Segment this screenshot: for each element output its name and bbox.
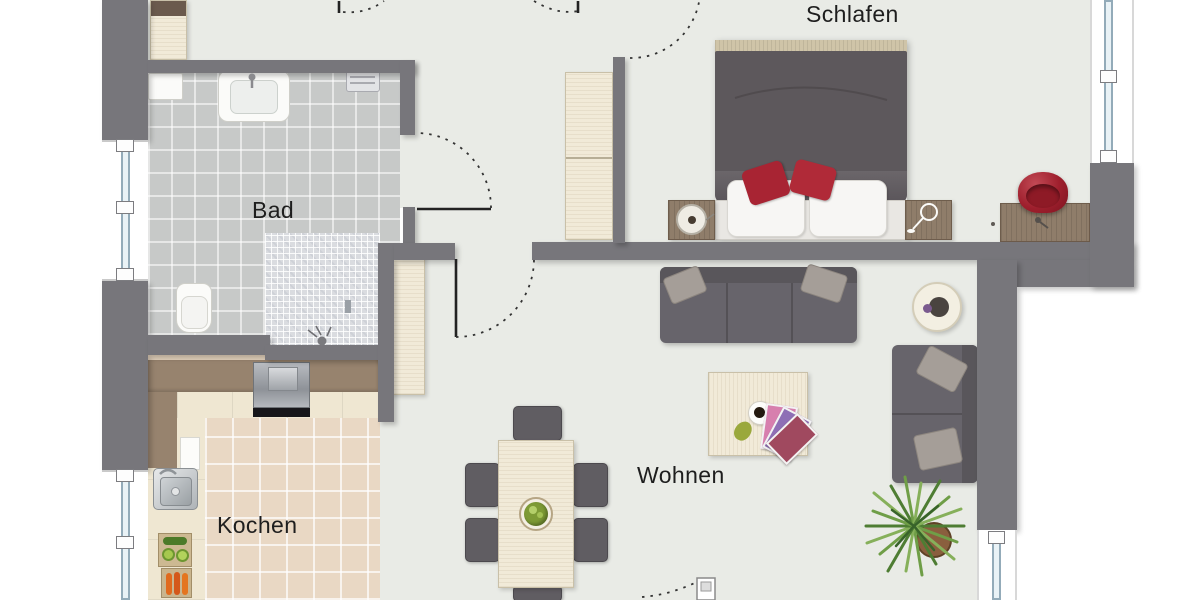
kitchen-sink-drain [171,487,180,496]
cucumber [163,537,187,545]
wall-living-east [977,260,1017,530]
salad-leaf [537,512,543,518]
wall-kitchen-east [378,243,394,422]
kitchen-floor [205,418,380,600]
dining-chair-right-2 [573,518,608,562]
toilet-seat [181,296,208,329]
window-handle [116,536,134,549]
dining-chair-left-2 [465,518,500,562]
cucumber-slice [162,548,175,561]
floor-door-gap-living [455,243,532,260]
wall-bath-east-lower [403,207,415,243]
bath-sink-basin [230,80,278,114]
sofa-divider [726,283,728,343]
floor-door-gap-bath [400,133,415,208]
double-bed [715,40,907,240]
toilet [176,283,212,333]
salad-leaf [529,506,537,514]
kitchen-sink [153,468,198,510]
floor-plan: Schlafen Bad Kochen Wohnen [0,0,1200,600]
coffee-table [708,372,808,456]
wall-shower-south [265,345,380,360]
room-label-kitchen: Kochen [217,512,297,539]
kitchen-board [180,437,200,470]
wall-bedroom-west [613,57,625,243]
wall-bath-north [148,60,415,73]
radiator-bar [350,82,375,84]
wardrobe-hall [565,72,613,240]
lamp-center [688,216,696,224]
wall-bath-south [148,335,270,355]
dining-chair-top [513,406,562,441]
window-handle [1100,70,1117,83]
carrot [174,572,180,595]
red-bowl [1018,172,1068,213]
window-handle [988,531,1005,544]
window-handle [116,201,134,214]
sofa-divider [791,283,793,343]
wall-bedroom-east [1090,163,1134,287]
floor-upper-room [148,0,415,60]
bath-sink [218,70,290,122]
carrot [182,573,188,595]
nightstand-right [905,200,952,240]
washing-machine [148,73,183,100]
cutting-board-cucumber [158,533,192,567]
stove-front-strip [253,408,310,417]
window-handle [116,139,134,152]
sofa-vertical [892,345,978,483]
decor-flower [923,304,932,313]
salad-bowl [524,502,548,526]
upper-cabinet-top [151,1,186,16]
decor-bowl [929,297,949,317]
window-handle [116,268,134,281]
sofa-cushion [913,427,964,471]
nightstand-lamp [676,204,707,235]
cucumber-slice [176,549,189,562]
shower-area [265,233,380,350]
wall-bath-east-upper [400,60,415,135]
upper-room-cabinet [150,0,187,60]
dining-chair-left-1 [465,463,500,507]
cutting-board-carrots [161,568,192,598]
window-handle [116,469,134,482]
floor-hall-gap [613,0,625,57]
side-table-round [912,282,962,332]
sofa-divider [892,413,962,415]
stove-inner [268,367,298,391]
kitchen-counter-back-left [148,392,177,468]
wardrobe-divider [566,157,612,159]
dining-chair-right-1 [573,463,608,507]
window-left-lower-glass [121,470,130,600]
carrot [166,573,172,595]
tall-cabinet [390,255,425,395]
wall-left-mid [102,281,148,470]
wall-left-top [102,0,148,140]
wall-bedroom-south [532,242,1134,260]
sofa-horizontal [660,267,857,343]
wall-hall-south-west [394,243,455,260]
sofa-cushion [915,345,969,394]
window-living-bottom-glass [992,542,1001,600]
stove [253,362,310,408]
room-label-bedroom: Schlafen [806,1,899,28]
red-bowl-inner [1026,184,1060,208]
dining-table [498,440,574,588]
room-label-bathroom: Bad [252,197,294,224]
floor-living-strip [378,422,394,600]
room-label-living: Wohnen [637,462,725,489]
window-handle [1100,150,1117,163]
radiator-bar [350,76,375,78]
